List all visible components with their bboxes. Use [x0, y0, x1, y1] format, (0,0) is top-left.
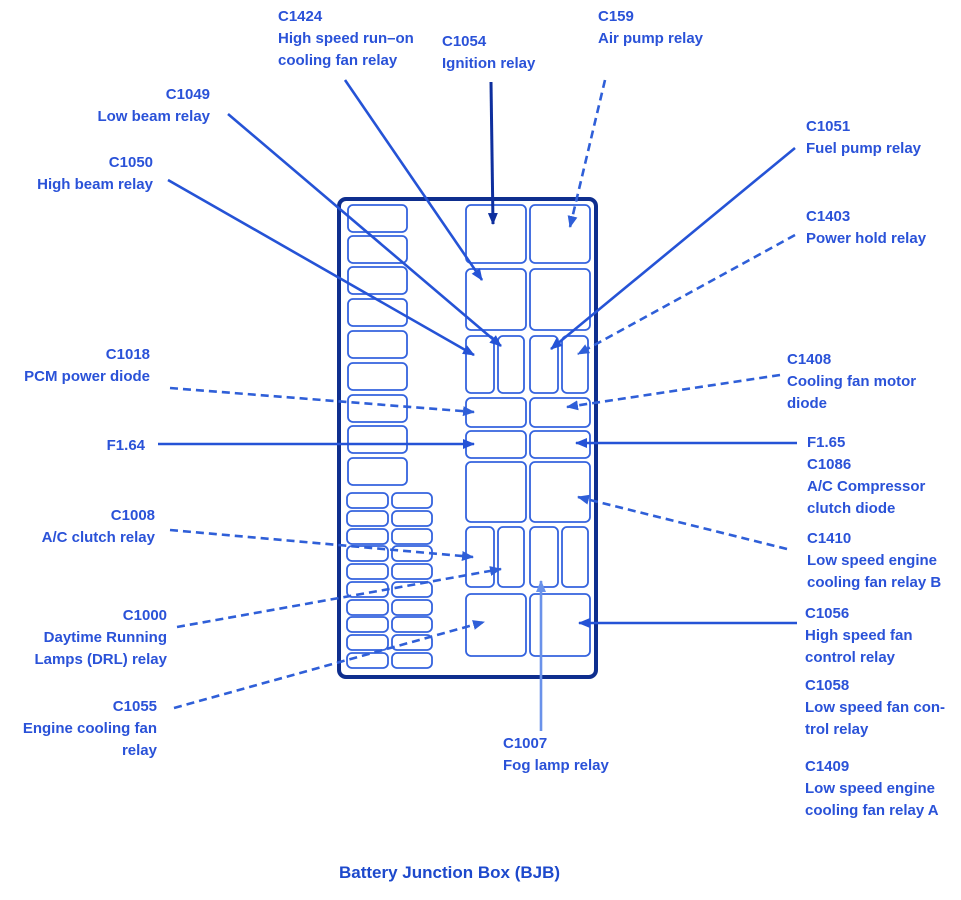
label-line: A/C clutch relay	[42, 527, 155, 549]
label-c1050: C1050 High beam relay	[37, 152, 153, 196]
relay-slot	[562, 527, 588, 587]
label-line: trol relay	[805, 719, 945, 741]
label-c1408: C1408 Cooling fan motor diode	[787, 349, 916, 415]
mini-fuse-slot	[347, 564, 388, 579]
label-c1056: C1056 High speed fan control relay	[805, 603, 913, 669]
label-line: Fog lamp relay	[503, 755, 609, 777]
mini-fuse-slot	[347, 635, 388, 650]
label-c1018: C1018 PCM power diode	[24, 344, 150, 388]
pointer-c1403	[578, 235, 795, 354]
relay-slot	[498, 527, 524, 587]
label-line: High speed fan	[805, 625, 913, 647]
pointer-c1050	[168, 180, 474, 355]
relay-slot	[466, 205, 526, 263]
label-line: C1410	[807, 528, 941, 550]
label-line: C1007	[503, 733, 609, 755]
relay-slot	[562, 336, 588, 393]
label-line: C1054	[442, 31, 535, 53]
label-c1409: C1409 Low speed engine cooling fan relay…	[805, 756, 939, 822]
label-line: Low speed engine	[805, 778, 939, 800]
fuse-slot	[348, 395, 407, 422]
relay-slot	[466, 269, 526, 330]
label-f1-65: F1.65	[807, 432, 845, 454]
label-line: F1.64	[107, 435, 145, 457]
relay-slot	[466, 336, 494, 393]
label-line: A/C Compressor	[807, 476, 925, 498]
fuse-slot	[348, 363, 407, 390]
mini-fuse-slot	[347, 529, 388, 544]
label-line: cooling fan relay A	[805, 800, 939, 822]
label-line: C1008	[42, 505, 155, 527]
label-c1000: C1000 Daytime Running Lamps (DRL) relay	[34, 605, 167, 671]
label-line: C1058	[805, 675, 945, 697]
relay-slot	[530, 527, 558, 587]
relay-slot	[530, 398, 590, 427]
relay-slot	[530, 594, 590, 656]
label-line: Ignition relay	[442, 53, 535, 75]
label-line: C1055	[23, 696, 157, 718]
label-line: C1049	[97, 84, 210, 106]
label-line: C1051	[806, 116, 921, 138]
label-line: clutch diode	[807, 498, 925, 520]
relay-slot	[466, 462, 526, 522]
fuse-slot	[348, 331, 407, 358]
bjb-fuse-diagram: C1424 High speed run–on cooling fan rela…	[0, 0, 961, 900]
pointer-c1051	[551, 148, 795, 349]
label-line: diode	[787, 393, 916, 415]
label-f1-64: F1.64	[107, 435, 145, 457]
mini-fuse-slot	[392, 617, 432, 632]
label-line: C1086	[807, 454, 925, 476]
label-line: Cooling fan motor	[787, 371, 916, 393]
label-c1049: C1049 Low beam relay	[97, 84, 210, 128]
mini-fuse-slot	[347, 493, 388, 508]
mini-fuse-slot	[392, 546, 432, 561]
label-line: C1000	[34, 605, 167, 627]
fuse-slot	[348, 267, 407, 294]
label-line: Low speed fan con-	[805, 697, 945, 719]
pointer-lines	[158, 80, 797, 731]
mini-fuse-slot	[392, 600, 432, 615]
label-line: C1424	[278, 6, 414, 28]
label-line: Power hold relay	[806, 228, 926, 250]
label-c1051: C1051 Fuel pump relay	[806, 116, 921, 160]
label-line: PCM power diode	[24, 366, 150, 388]
label-line: High beam relay	[37, 174, 153, 196]
label-line: High speed run–on	[278, 28, 414, 50]
label-line: C159	[598, 6, 703, 28]
label-c1054: C1054 Ignition relay	[442, 31, 535, 75]
label-line: Air pump relay	[598, 28, 703, 50]
relay-slot	[530, 462, 590, 522]
label-c1058: C1058 Low speed fan con- trol relay	[805, 675, 945, 741]
label-c1410: C1410 Low speed engine cooling fan relay…	[807, 528, 941, 594]
mini-fuse-slot	[392, 564, 432, 579]
pointer-c1018	[170, 388, 474, 412]
relay-slot	[498, 336, 524, 393]
mini-fuse-slot	[392, 493, 432, 508]
label-c1424: C1424 High speed run–on cooling fan rela…	[278, 6, 414, 72]
label-line: F1.65	[807, 432, 845, 454]
relay-slot	[530, 431, 590, 458]
label-c1403: C1403 Power hold relay	[806, 206, 926, 250]
pointer-c1054	[491, 82, 493, 224]
label-line: C1050	[37, 152, 153, 174]
label-line: Engine cooling fan	[23, 718, 157, 740]
pointer-c1408	[567, 375, 780, 407]
pointer-c1424	[345, 80, 482, 280]
slot-grid	[347, 205, 590, 668]
label-line: C1409	[805, 756, 939, 778]
label-line: control relay	[805, 647, 913, 669]
label-line: Low beam relay	[97, 106, 210, 128]
relay-slot	[466, 431, 526, 458]
label-line: C1018	[24, 344, 150, 366]
diagram-caption: Battery Junction Box (BJB)	[339, 861, 560, 885]
mini-fuse-slot	[392, 653, 432, 668]
pointer-c1049	[228, 114, 501, 346]
label-c1086: C1086 A/C Compressor clutch diode	[807, 454, 925, 520]
label-line: C1403	[806, 206, 926, 228]
label-line: C1408	[787, 349, 916, 371]
pointer-c1410	[578, 497, 787, 549]
label-line: Low speed engine	[807, 550, 941, 572]
label-line: Fuel pump relay	[806, 138, 921, 160]
fuse-slot	[348, 426, 407, 453]
mini-fuse-slot	[392, 529, 432, 544]
label-line: C1056	[805, 603, 913, 625]
label-line: cooling fan relay	[278, 50, 414, 72]
fuse-slot	[348, 205, 407, 232]
mini-fuse-slot	[392, 511, 432, 526]
label-c1055: C1055 Engine cooling fan relay	[23, 696, 157, 762]
fuse-slot	[348, 458, 407, 485]
mini-fuse-slot	[347, 511, 388, 526]
label-line: Lamps (DRL) relay	[34, 649, 167, 671]
label-c1007: C1007 Fog lamp relay	[503, 733, 609, 777]
label-line: relay	[23, 740, 157, 762]
mini-fuse-slot	[347, 617, 388, 632]
label-c1008: C1008 A/C clutch relay	[42, 505, 155, 549]
relay-slot	[530, 336, 558, 393]
label-line: Daytime Running	[34, 627, 167, 649]
relay-slot	[530, 269, 590, 330]
relay-slot	[530, 205, 590, 263]
mini-fuse-slot	[347, 600, 388, 615]
label-line: cooling fan relay B	[807, 572, 941, 594]
relay-slot	[466, 398, 526, 427]
pointer-c1055	[174, 622, 484, 708]
label-c159: C159 Air pump relay	[598, 6, 703, 50]
